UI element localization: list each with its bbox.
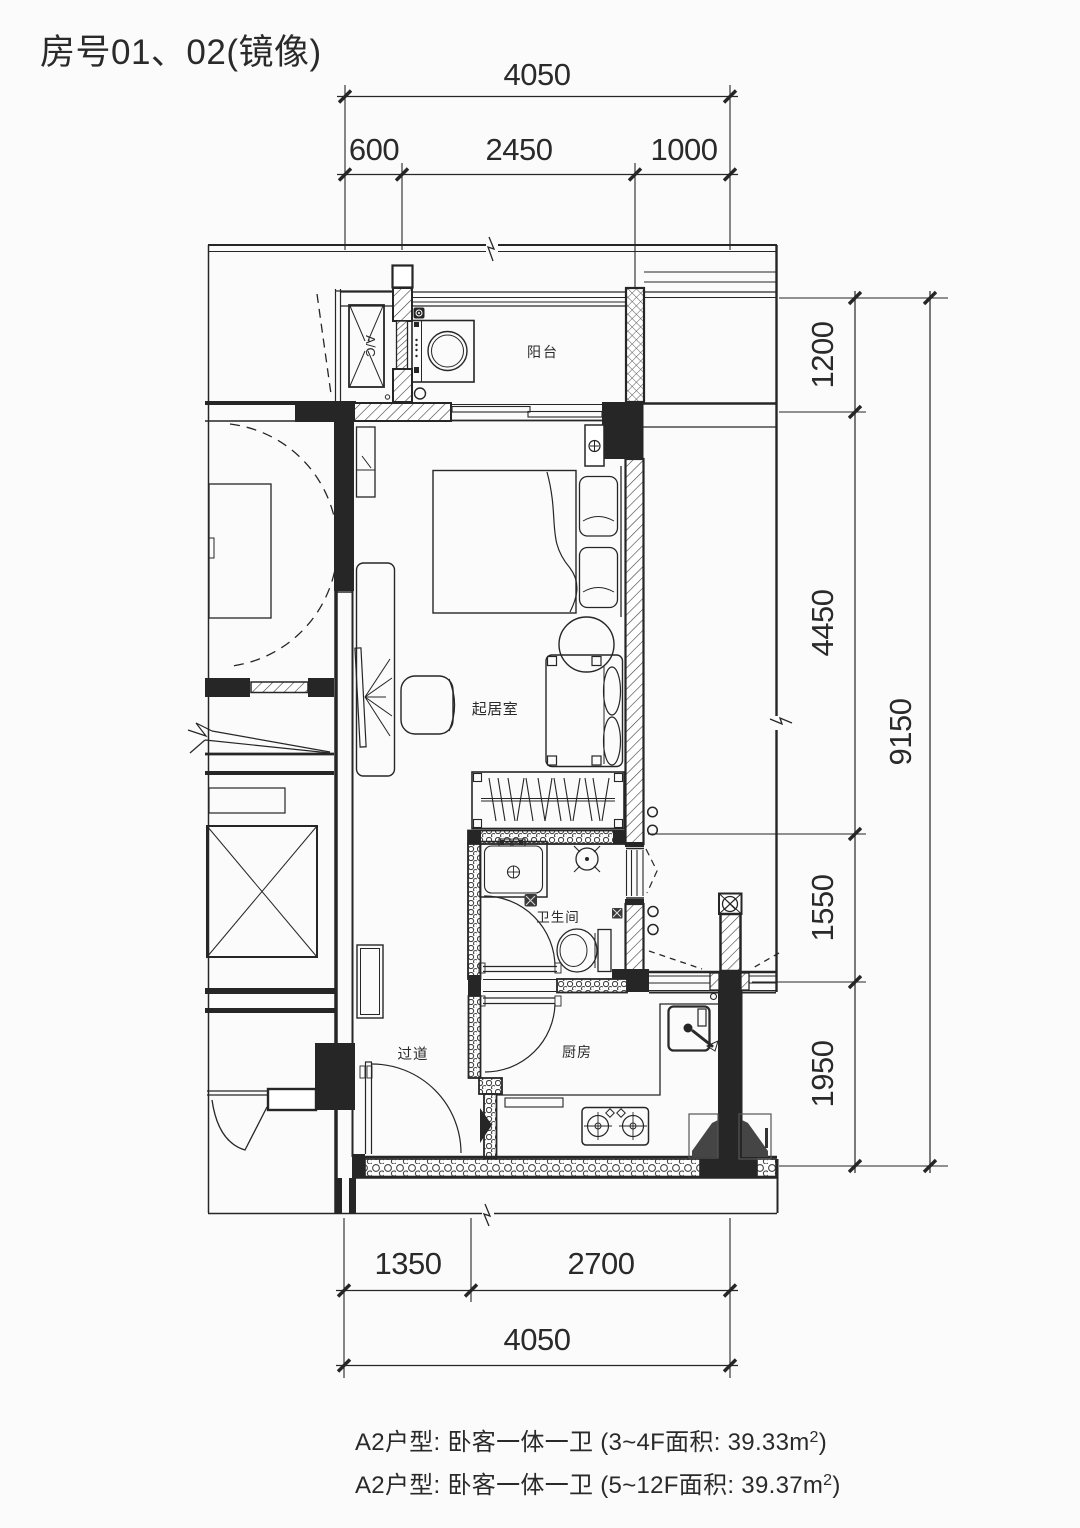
svg-text:阳台: 阳台	[527, 344, 559, 360]
svg-text:A/C: A/C	[363, 335, 378, 357]
svg-text:600: 600	[349, 132, 399, 167]
svg-text:9150: 9150	[883, 698, 918, 765]
svg-text:4050: 4050	[504, 1322, 571, 1357]
svg-text:2450: 2450	[486, 132, 553, 167]
svg-text:厨房: 厨房	[562, 1044, 592, 1060]
svg-text:4450: 4450	[805, 589, 840, 656]
svg-text:过道: 过道	[398, 1046, 429, 1063]
svg-text:2700: 2700	[568, 1246, 635, 1281]
svg-text:1200: 1200	[805, 321, 840, 388]
svg-text:房号01、02(镜像): 房号01、02(镜像)	[40, 33, 322, 72]
svg-text:4050: 4050	[504, 57, 571, 92]
svg-text:A2户型: 卧客一体一卫 (3~4F面积: 39.33m2): A2户型: 卧客一体一卫 (3~4F面积: 39.33m2)	[355, 1429, 827, 1456]
svg-text:1000: 1000	[651, 132, 718, 167]
svg-text:起居室: 起居室	[472, 701, 519, 718]
svg-text:1550: 1550	[805, 874, 840, 941]
svg-text:A2户型: 卧客一体一卫 (5~12F面积: 39.37m2: A2户型: 卧客一体一卫 (5~12F面积: 39.37m2)	[355, 1472, 841, 1499]
svg-text:1350: 1350	[375, 1246, 442, 1281]
svg-text:卫生间: 卫生间	[536, 910, 580, 925]
svg-text:1950: 1950	[805, 1040, 840, 1107]
